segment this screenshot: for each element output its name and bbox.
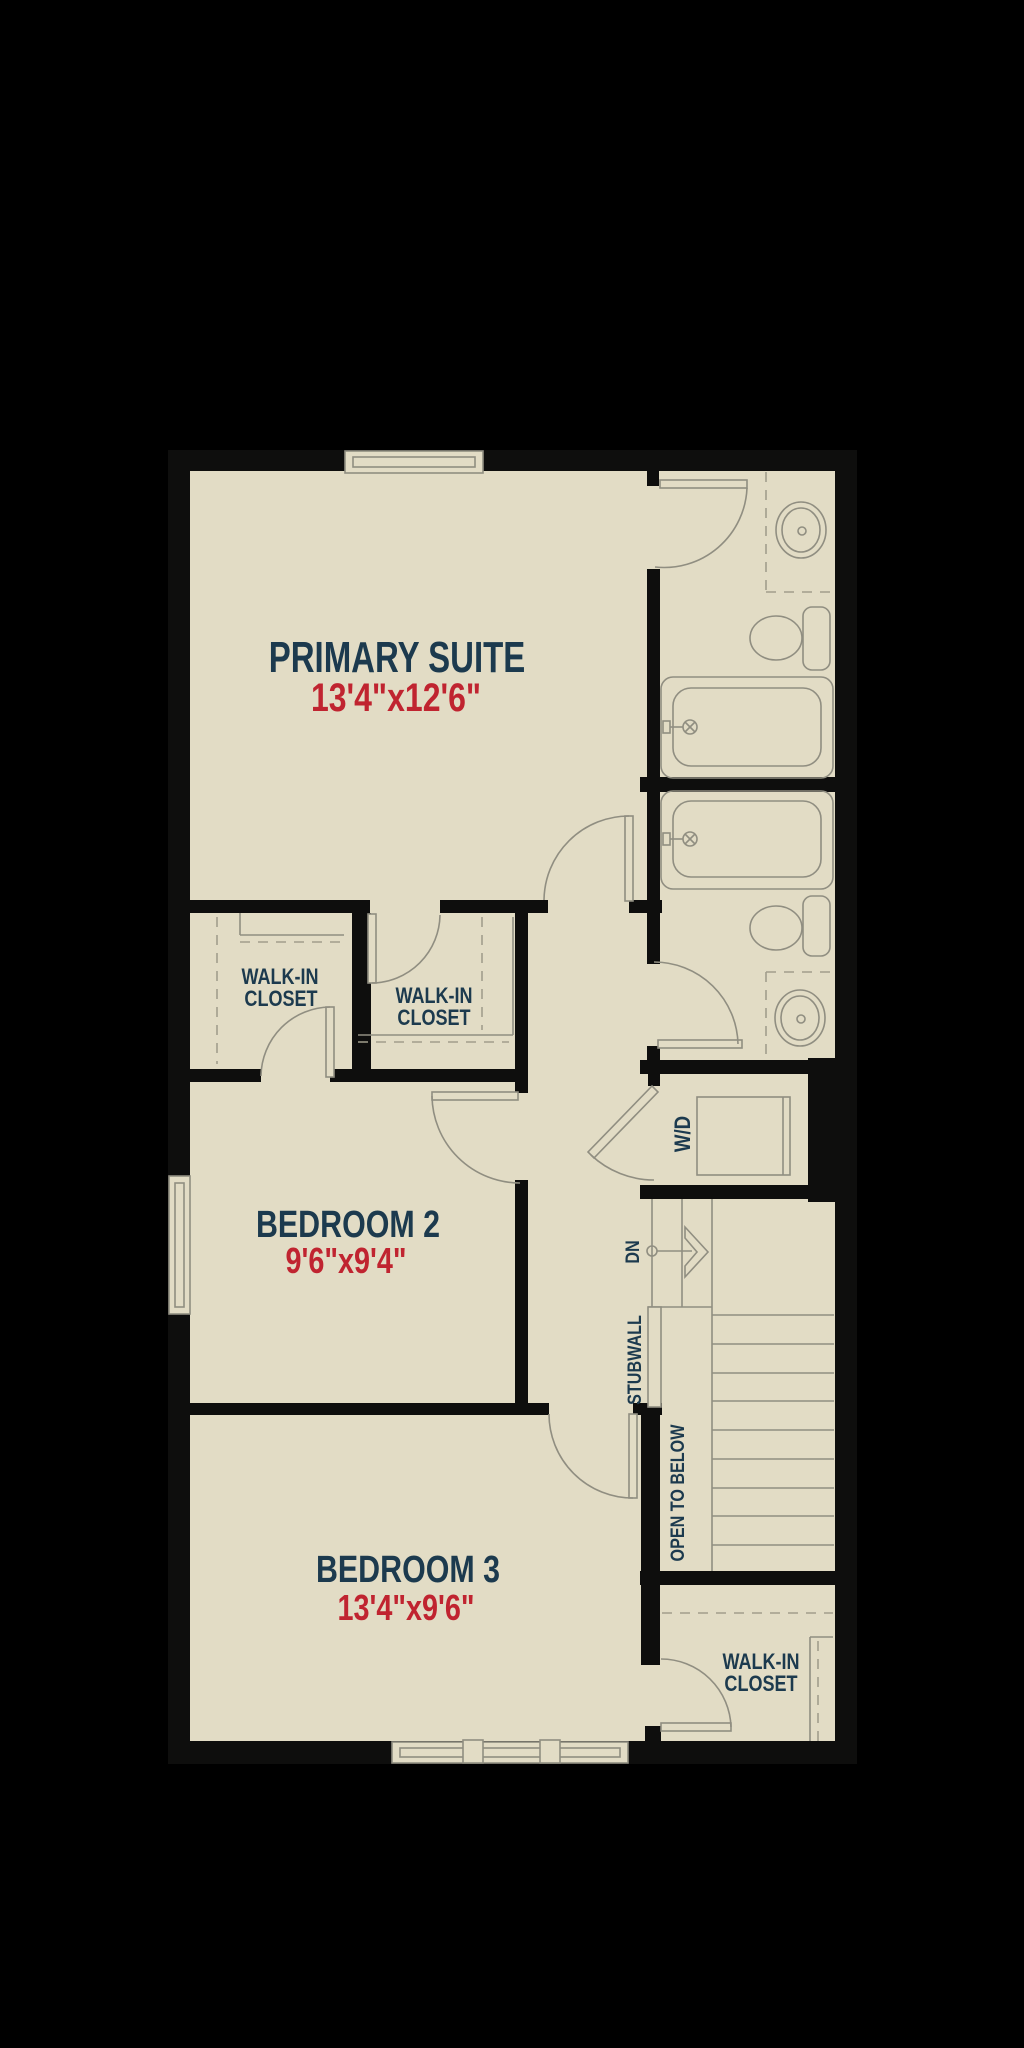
wall — [808, 1058, 857, 1202]
wall — [640, 1060, 855, 1074]
closet-primary-label-line1: WALK-IN — [395, 984, 472, 1008]
bedroom2-dims: 9'6"x9'4" — [285, 1240, 406, 1281]
bedroom3-dims: 13'4"x9'6" — [337, 1587, 474, 1628]
window-icon — [392, 1740, 628, 1763]
wall — [440, 900, 548, 913]
closet-lower-label-line1: WALK-IN — [722, 1650, 799, 1674]
closet-bedroom2-label-line1: WALK-IN — [241, 965, 318, 989]
wall — [640, 1571, 855, 1585]
wall — [515, 913, 528, 1093]
wall — [515, 1180, 528, 1405]
closet-lower-label-line2: CLOSET — [724, 1672, 798, 1696]
open-to-below-label: OPEN TO BELOW — [667, 1424, 689, 1561]
window-icon — [169, 1176, 190, 1314]
bedroom3-label: BEDROOM 3 — [316, 1549, 500, 1591]
wall — [645, 1726, 661, 1743]
window-icon — [345, 451, 483, 473]
stub-wall — [648, 1307, 661, 1407]
primary-suite-dims: 13'4"x12'6" — [311, 675, 481, 720]
wall — [330, 1069, 517, 1082]
wall — [185, 1069, 261, 1082]
laundry-label: W/D — [672, 1116, 696, 1152]
wall — [168, 450, 857, 471]
wall — [647, 569, 660, 964]
wall — [640, 1185, 855, 1199]
wall — [185, 900, 370, 913]
stairs-dn-label: DN — [622, 1240, 644, 1263]
stubwall-label: STUBWALL — [624, 1315, 646, 1405]
wall — [641, 1408, 660, 1665]
wall — [185, 1403, 549, 1415]
closet-bedroom2-label-line2: CLOSET — [244, 987, 318, 1011]
floorplan-page: PRIMARY SUITE 13'4"x12'6" WALK-IN CLOSET… — [0, 0, 1024, 2048]
wall — [647, 470, 659, 486]
wall — [640, 777, 855, 792]
wall — [168, 450, 190, 1764]
closet-primary-label-line2: CLOSET — [397, 1006, 471, 1030]
wall — [648, 1074, 660, 1086]
floorplan-drawing: PRIMARY SUITE 13'4"x12'6" WALK-IN CLOSET… — [0, 0, 1024, 2048]
